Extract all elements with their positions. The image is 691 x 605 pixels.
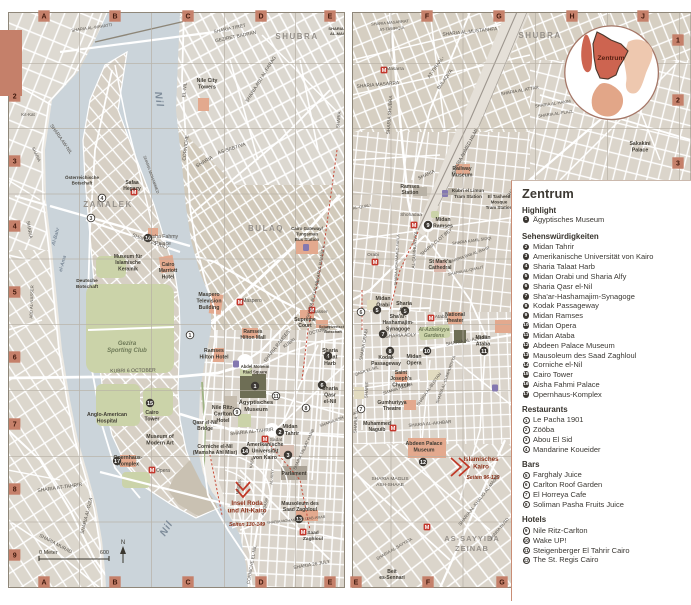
svg-text:St Mark's: St Mark's <box>429 259 451 265</box>
svg-text:1: 1 <box>189 333 192 339</box>
svg-text:ZEINAB: ZEINAB <box>455 544 489 553</box>
svg-text:Hotel: Hotel <box>217 418 231 424</box>
svg-text:Cairo: Cairo <box>145 410 158 416</box>
svg-text:Midan: Midan <box>407 354 422 360</box>
svg-text:E: E <box>328 14 333 21</box>
svg-text:5: 5 <box>13 290 17 297</box>
svg-text:3: 3 <box>286 453 289 459</box>
svg-text:National: National <box>445 312 465 318</box>
svg-text:G: G <box>496 14 502 21</box>
svg-text:Österreichische: Österreichische <box>65 174 100 180</box>
svg-text:3: 3 <box>676 161 680 168</box>
svg-text:Beit: Beit <box>387 569 397 575</box>
svg-text:Nil: Nil <box>152 91 165 108</box>
svg-text:Orabi: Orabi <box>376 302 390 308</box>
svg-text:Tungsman: Tungsman <box>296 232 318 237</box>
svg-text:Palace: Palace <box>632 147 649 153</box>
svg-text:M: M <box>412 223 417 229</box>
svg-text:Museum: Museum <box>413 447 434 453</box>
svg-text:Marriott: Marriott <box>159 268 178 274</box>
svg-text:Sakakini: Sakakini <box>629 141 651 147</box>
svg-text:Insel Roda: Insel Roda <box>231 500 263 507</box>
svg-text:Corniche el-Nil: Corniche el-Nil <box>197 444 233 450</box>
svg-text:Church: Church <box>392 382 410 388</box>
svg-text:Botschaft: Botschaft <box>76 284 99 290</box>
svg-text:Midan: Midan <box>436 217 451 223</box>
svg-text:7: 7 <box>360 407 363 413</box>
svg-text:Opera: Opera <box>156 468 170 474</box>
svg-text:Botschaft: Botschaft <box>324 330 342 334</box>
svg-text:C: C <box>185 580 190 587</box>
svg-text:Building: Building <box>199 305 220 311</box>
svg-text:Gardens: Gardens <box>424 333 445 339</box>
svg-text:Bus Station: Bus Station <box>295 237 320 242</box>
svg-text:M: M <box>373 260 378 266</box>
svg-text:SHUBRA: SHUBRA <box>518 31 561 40</box>
svg-text:Television: Television <box>197 298 222 304</box>
svg-text:Museum für: Museum für <box>114 254 142 260</box>
svg-text:Saad Zaghloul: Saad Zaghloul <box>283 507 318 513</box>
svg-text:SHUBRA: SHUBRA <box>275 32 318 41</box>
svg-text:Midan: Midan <box>376 296 391 302</box>
svg-text:B: B <box>112 580 117 587</box>
svg-text:Midan: Midan <box>283 424 298 430</box>
svg-text:11: 11 <box>481 349 487 355</box>
svg-text:Nile City: Nile City <box>197 78 218 84</box>
svg-text:Riad Square: Riad Square <box>243 369 268 374</box>
svg-text:14: 14 <box>242 449 249 455</box>
svg-text:Ataba: Ataba <box>476 341 491 347</box>
svg-text:Court: Court <box>298 323 312 329</box>
svg-text:Ramses: Ramses <box>243 329 262 335</box>
svg-text:Hashamajim-: Hashamajim- <box>382 320 413 326</box>
svg-text:12: 12 <box>420 460 426 466</box>
svg-text:Station: Station <box>402 190 419 196</box>
svg-text:theater: theater <box>447 318 464 324</box>
svg-text:8: 8 <box>305 406 308 412</box>
svg-text:Ramses: Ramses <box>400 184 419 190</box>
svg-text:Railway: Railway <box>452 166 471 172</box>
svg-text:9: 9 <box>236 410 239 416</box>
svg-text:Tower: Tower <box>145 416 160 422</box>
svg-text:Museum: Museum <box>451 172 472 178</box>
svg-text:Ramses: Ramses <box>433 223 453 229</box>
svg-text:Modern Art: Modern Art <box>146 440 174 446</box>
svg-text:Abdeen Palace: Abdeen Palace <box>406 441 443 447</box>
svg-text:M: M <box>429 316 434 322</box>
svg-text:Islamisches: Islamisches <box>463 456 499 463</box>
svg-text:Aisha Fahmy: Aisha Fahmy <box>148 234 179 240</box>
svg-text:Masarra: Masarra <box>386 66 404 72</box>
svg-text:10: 10 <box>424 349 430 355</box>
svg-text:Botschaft: Botschaft <box>72 181 93 186</box>
svg-text:BULAQ: BULAQ <box>248 224 284 233</box>
svg-text:F: F <box>425 14 430 21</box>
svg-text:9: 9 <box>426 223 429 229</box>
svg-text:Ramses: Ramses <box>204 348 224 354</box>
svg-text:Parlament: Parlament <box>281 471 306 477</box>
svg-text:Palace: Palace <box>155 241 171 247</box>
svg-text:3: 3 <box>13 159 17 166</box>
svg-text:M: M <box>391 426 396 432</box>
svg-text:SHARIA MAGLIS: SHARIA MAGLIS <box>371 476 408 482</box>
svg-text:Nasser: Nasser <box>312 309 328 315</box>
svg-text:und Alt-Kairo: und Alt-Kairo <box>228 507 267 514</box>
svg-text:Qasr el-Nil: Qasr el-Nil <box>192 420 218 426</box>
svg-text:6: 6 <box>13 355 17 362</box>
svg-text:Maspero: Maspero <box>198 292 219 298</box>
svg-text:von Kairo: von Kairo <box>253 455 277 461</box>
svg-text:Ataba: Ataba <box>435 314 448 320</box>
svg-text:Tahrir: Tahrir <box>285 431 299 437</box>
svg-text:Bridge: Bridge <box>197 426 213 432</box>
svg-text:Kit-Kat: Kit-Kat <box>21 112 35 117</box>
svg-text:Sha'ar-: Sha'ar- <box>390 314 407 320</box>
svg-text:Hilton Hotel: Hilton Hotel <box>199 354 229 360</box>
svg-text:Towers: Towers <box>198 84 216 90</box>
svg-text:(Mamsha Ahl Misr): (Mamsha Ahl Misr) <box>193 450 238 456</box>
svg-text:Hotel: Hotel <box>162 274 175 280</box>
svg-text:Talaat: Talaat <box>323 354 338 360</box>
svg-text:Schweizerische: Schweizerische <box>319 325 347 329</box>
svg-text:Saint: Saint <box>395 370 408 376</box>
svg-text:es-Sennari: es-Sennari <box>379 575 405 581</box>
svg-text:Anglo-American: Anglo-American <box>87 412 127 418</box>
svg-text:Sporting Club: Sporting Club <box>107 348 147 354</box>
svg-text:Cairo Gateway/: Cairo Gateway/ <box>291 226 324 231</box>
svg-text:Qasr: Qasr <box>324 392 336 398</box>
svg-text:Muhammed: Muhammed <box>363 421 391 427</box>
svg-text:Supreme: Supreme <box>294 317 316 323</box>
svg-text:Museum of: Museum of <box>146 434 174 440</box>
svg-text:2: 2 <box>676 98 680 105</box>
svg-text:el-Nil: el-Nil <box>324 399 337 405</box>
svg-text:Mausoleum des: Mausoleum des <box>281 501 319 507</box>
svg-text:Tram Station: Tram Station <box>486 205 513 210</box>
svg-text:1: 1 <box>253 384 256 390</box>
svg-text:Zentrum: Zentrum <box>597 55 624 62</box>
svg-text:Komplex: Komplex <box>117 461 139 467</box>
svg-text:E: E <box>354 580 359 587</box>
svg-text:Gezira: Gezira <box>118 341 137 347</box>
svg-text:1: 1 <box>676 38 680 45</box>
svg-text:6: 6 <box>360 310 363 316</box>
svg-text:7: 7 <box>381 332 384 338</box>
svg-text:M: M <box>150 468 155 474</box>
svg-text:0 Meter: 0 Meter <box>39 550 58 556</box>
svg-text:C: C <box>185 14 190 21</box>
svg-text:F: F <box>426 580 431 587</box>
svg-text:Deutsche: Deutsche <box>76 278 98 284</box>
svg-text:Opernhaus-: Opernhaus- <box>113 455 142 461</box>
svg-text:Orabi: Orabi <box>367 252 379 258</box>
svg-text:ZAMALEK: ZAMALEK <box>83 200 133 209</box>
svg-text:Cathedral: Cathedral <box>428 265 452 271</box>
svg-text:Sharia: Sharia <box>322 386 338 392</box>
svg-text:11: 11 <box>273 394 279 400</box>
svg-text:Ägyptisches: Ägyptisches <box>239 399 273 406</box>
svg-text:ASH-SHAAB: ASH-SHAAB <box>376 482 404 488</box>
svg-text:M: M <box>301 530 306 536</box>
svg-text:Cairo: Cairo <box>162 262 175 268</box>
svg-text:Hilton Mall: Hilton Mall <box>240 335 266 341</box>
svg-text:Sharia: Sharia <box>396 301 412 307</box>
svg-text:Theatre: Theatre <box>383 406 401 412</box>
svg-text:Gumhuriyya: Gumhuriyya <box>377 400 406 406</box>
svg-text:Sadat: Sadat <box>270 437 283 443</box>
svg-text:8: 8 <box>13 487 17 494</box>
svg-text:N: N <box>121 540 125 546</box>
svg-text:Harb: Harb <box>324 361 336 367</box>
svg-text:9: 9 <box>13 553 17 560</box>
svg-text:Mosque: Mosque <box>491 200 508 205</box>
svg-text:3: 3 <box>90 216 93 222</box>
svg-text:H: H <box>569 14 574 21</box>
svg-text:J: J <box>641 14 645 21</box>
svg-text:B: B <box>112 14 117 21</box>
svg-text:A: A <box>41 14 46 21</box>
svg-text:4: 4 <box>13 224 17 231</box>
svg-text:KUBRI 6 OCTOBER: KUBRI 6 OCTOBER <box>110 368 156 375</box>
svg-text:Seiten 130-149: Seiten 130-149 <box>229 522 265 528</box>
svg-text:Tram Station: Tram Station <box>454 194 482 199</box>
svg-text:2: 2 <box>13 94 17 101</box>
svg-text:Hospital: Hospital <box>97 418 118 424</box>
svg-text:Safaa: Safaa <box>125 180 139 186</box>
svg-text:600: 600 <box>100 550 109 556</box>
svg-text:Kodak: Kodak <box>378 355 394 361</box>
svg-text:5: 5 <box>375 308 378 314</box>
svg-text:D: D <box>258 14 263 21</box>
svg-text:Abdel Moneim: Abdel Moneim <box>241 364 270 369</box>
svg-text:Alfy: Alfy <box>399 307 409 313</box>
svg-text:Shohadaa: Shohadaa <box>400 212 422 218</box>
svg-text:15: 15 <box>147 401 153 407</box>
svg-text:A: A <box>41 580 46 587</box>
svg-text:Nile Ritz-: Nile Ritz- <box>212 405 234 411</box>
svg-text:E: E <box>328 580 333 587</box>
svg-text:Sharia: Sharia <box>322 348 338 354</box>
svg-text:Passageway: Passageway <box>371 361 401 367</box>
svg-text:Zaghloul: Zaghloul <box>303 536 323 542</box>
svg-text:Maspero: Maspero <box>242 298 262 304</box>
svg-text:Kairo: Kairo <box>473 463 489 470</box>
svg-text:El Tasheed: El Tasheed <box>488 194 511 199</box>
svg-text:Joseph's: Joseph's <box>390 376 412 382</box>
svg-text:Midan: Midan <box>476 335 491 341</box>
svg-text:G: G <box>499 580 505 587</box>
svg-text:Keramik: Keramik <box>118 266 138 272</box>
svg-text:Opera: Opera <box>407 360 422 366</box>
svg-text:M: M <box>425 525 430 531</box>
svg-text:Saad: Saad <box>307 530 319 536</box>
svg-text:Naguib: Naguib <box>369 427 386 433</box>
svg-text:Museum: Museum <box>244 407 268 413</box>
svg-text:Islamische: Islamische <box>115 260 141 266</box>
svg-text:Universität: Universität <box>252 448 279 454</box>
svg-text:Carlton: Carlton <box>214 411 232 417</box>
svg-text:Kubri el Limun: Kubri el Limun <box>452 188 484 193</box>
svg-text:Hegazy: Hegazy <box>123 186 141 192</box>
svg-text:Synagoge: Synagoge <box>386 326 410 332</box>
svg-text:8: 8 <box>388 349 391 355</box>
svg-text:7: 7 <box>13 422 17 429</box>
svg-text:2: 2 <box>278 430 281 436</box>
svg-text:D: D <box>258 580 263 587</box>
